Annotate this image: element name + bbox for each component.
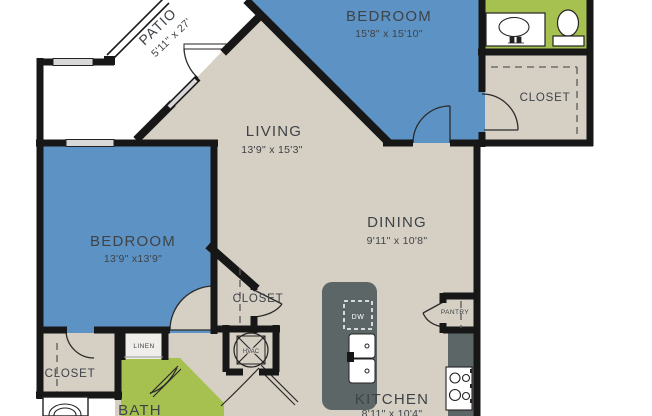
sink-basin-2 [349, 359, 375, 383]
stove [446, 367, 472, 410]
floor-plan: PATIO 5'11" x 27' BEDROOM 15'8" x 15'10"… [0, 0, 652, 416]
floor-plan-svg: PATIO 5'11" x 27' BEDROOM 15'8" x 15'10"… [0, 0, 652, 416]
railing-post [104, 56, 115, 65]
toilet-icon [558, 10, 579, 36]
bedroom-left-dims: 13'9" x13'9" [104, 253, 162, 265]
dining-label: DINING [367, 214, 427, 231]
bedroom-top-dims: 15'8" x 15'10" [355, 28, 423, 40]
kitchen-label: KITCHEN [355, 391, 429, 408]
dishwasher-label: DW [352, 314, 365, 321]
bedroom-left-label: BEDROOM [90, 233, 176, 250]
closet-tr-label: CLOSET [520, 92, 571, 104]
linen-label: LINEN [133, 343, 154, 350]
pantry-label: PANTRY [441, 309, 469, 316]
patio-door-leaf [184, 44, 226, 49]
closet-bl-label: CLOSET [45, 368, 96, 380]
closet-bl-floor [40, 330, 118, 398]
dining-dims: 9'11" x 10'8" [367, 235, 428, 247]
living-label: LIVING [246, 123, 302, 140]
hvac-label: HVAC [243, 349, 260, 355]
bedroom-left-window [66, 140, 114, 147]
patio-window [53, 59, 93, 66]
toilet-tank [553, 36, 584, 46]
bedroom-top-label: BEDROOM [346, 8, 432, 25]
living-dims: 13'9" x 15'3" [241, 144, 303, 156]
kitchen-dims: 8'11" x 10'4" [362, 408, 423, 416]
island-faucet [347, 352, 354, 362]
closet-hall-label: CLOSET [233, 293, 284, 305]
bath-label: BATH [118, 402, 162, 416]
